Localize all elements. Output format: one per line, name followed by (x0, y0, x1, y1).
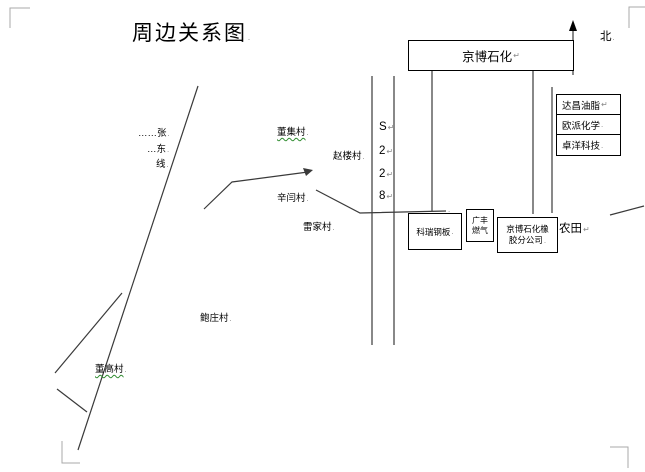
road-branch-lower (57, 389, 87, 412)
pilcrow-mark: ↵ (386, 192, 393, 201)
village-label-dongji[interactable]: 董集村. (277, 128, 309, 138)
hidden-char-mark: . (601, 120, 603, 129)
hidden-char-mark: . (167, 160, 169, 169)
road-zhangdong-label-1[interactable]: ……张. (138, 129, 170, 139)
page-corner-mark-top-right (629, 7, 645, 28)
farmland-label[interactable]: 农田↵ (559, 224, 590, 236)
pilcrow-mark: ↵ (601, 100, 608, 109)
pilcrow-mark: ↵ (513, 51, 520, 60)
page-title[interactable]: 周边关系图. (132, 23, 252, 44)
road-s228-label-2a[interactable]: 2↵ (379, 146, 393, 158)
kerui-steel-box[interactable]: 科瑞钢板. (408, 213, 462, 250)
road-zhangdong-label-3[interactable]: 线. (156, 160, 169, 170)
pilcrow-mark: ↵ (386, 170, 393, 179)
village-label-donggao[interactable]: 董高村. (95, 365, 127, 375)
hidden-char-mark: . (451, 227, 453, 236)
pilcrow-mark: ↵ (388, 123, 395, 132)
road-end-hidden-char-mark: . (448, 206, 450, 214)
hidden-char-mark: . (363, 152, 365, 161)
guangfeng-gas-box[interactable]: 广丰 燃气 (466, 209, 494, 242)
hidden-char-mark: . (167, 145, 169, 154)
hidden-char-mark: . (601, 141, 603, 150)
road-s228-label-8[interactable]: 8↵ (379, 191, 393, 203)
road-s228-label-s[interactable]: S↵ (379, 122, 394, 134)
word-document-page[interactable]: 周边关系图. 北. 京博石化↵ 达昌油脂↵ 欧派化学. 卓洋科技. S↵ 2↵ … (0, 0, 645, 472)
road-arrow-head-icon (303, 168, 313, 176)
jingbo-petrochemical-box[interactable]: 京博石化↵ (408, 40, 574, 71)
page-corner-mark-top-left (10, 8, 30, 28)
hidden-char-mark: . (125, 365, 127, 374)
village-label-leijia[interactable]: 雷家村. (303, 223, 335, 233)
hidden-char-mark: . (613, 33, 615, 42)
road-branch-upper (55, 293, 122, 373)
hidden-char-mark: . (168, 129, 170, 138)
zhuoyang-tech-box[interactable]: 卓洋科技. (556, 134, 621, 156)
road-zhangdong-label-2[interactable]: …东. (147, 145, 169, 155)
pilcrow-mark: ↵ (386, 147, 393, 156)
road-s228-label-2b[interactable]: 2↵ (379, 169, 393, 181)
page-corner-mark-bottom-left (62, 441, 80, 463)
village-label-baozhuang[interactable]: 鲍庄村. (200, 314, 232, 324)
hidden-char-mark: . (248, 33, 252, 42)
compass-north-label[interactable]: 北. (600, 32, 615, 44)
oupai-chemical-box[interactable]: 欧派化学. (556, 114, 621, 135)
hidden-char-mark: . (333, 223, 335, 232)
road-east-west-east-part (610, 206, 644, 215)
jingbo-rubber-branch-box[interactable]: 京博石化橡 胶分公司. (497, 217, 558, 253)
north-arrow-head-icon (569, 20, 577, 31)
hidden-char-mark: . (230, 314, 232, 323)
pilcrow-mark: ↵ (583, 225, 590, 234)
village-label-xinyan[interactable]: 辛闫村. (277, 194, 309, 204)
hidden-char-mark: . (307, 194, 309, 203)
village-label-zhaolou[interactable]: 赵楼村. (333, 152, 365, 162)
road-zhangdong-main (78, 86, 198, 450)
hidden-char-mark: . (307, 128, 309, 137)
dachang-oils-box[interactable]: 达昌油脂↵ (556, 94, 621, 115)
hidden-char-mark: . (544, 236, 546, 245)
page-corner-mark-bottom-right (610, 447, 628, 468)
